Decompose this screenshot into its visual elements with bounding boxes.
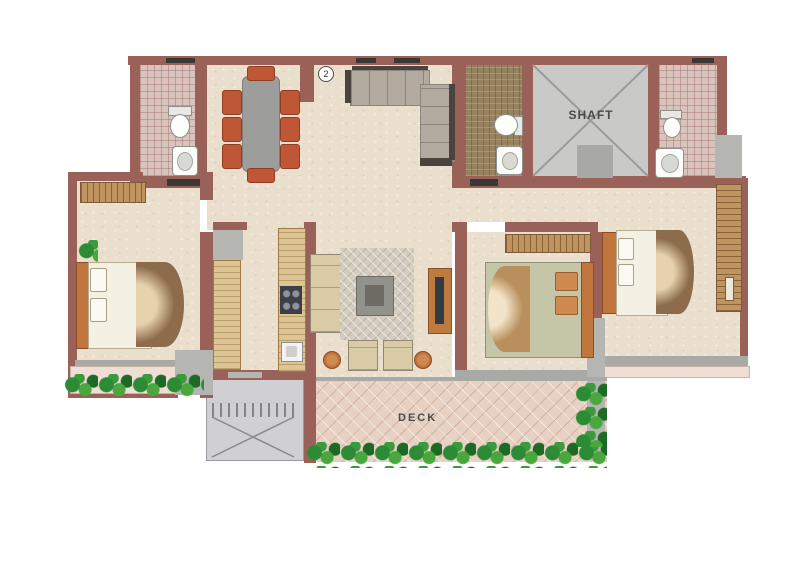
window: [692, 58, 714, 63]
wardrobe: [80, 182, 146, 203]
sofa-armrest: [345, 70, 351, 103]
washbasin-icon: [496, 146, 523, 175]
bed-blanket: [488, 266, 530, 352]
dining-chair: [222, 90, 242, 115]
dining-chair: [280, 144, 300, 169]
pillow: [90, 298, 107, 322]
ac-ledge: [715, 135, 742, 178]
basin-bowl: [177, 152, 193, 171]
entry-number: 2: [323, 69, 328, 79]
washbasin-icon: [655, 148, 684, 178]
sofa-back: [449, 84, 455, 160]
door-threshold: [167, 179, 200, 186]
service-grill: [212, 403, 294, 417]
toilet-icon: [494, 114, 518, 136]
kitchen-platform: [213, 230, 243, 260]
pillow: [618, 238, 634, 260]
bedroom3-window-sill: [598, 356, 748, 366]
wall: [213, 222, 247, 230]
sofa-l-shape: [350, 70, 430, 106]
bed-blanket: [656, 230, 694, 314]
window: [166, 58, 198, 63]
wall: [128, 56, 727, 65]
sofa: [310, 254, 341, 333]
side-stool: [414, 351, 432, 369]
sofa-armrest: [420, 158, 452, 166]
hallway-floor: [452, 188, 602, 222]
basin-bowl: [502, 152, 518, 170]
door-threshold: [470, 179, 498, 186]
dining-chair: [280, 117, 300, 142]
wall: [130, 56, 140, 186]
washbasin-icon: [172, 146, 198, 176]
dining-chair: [247, 66, 275, 81]
service-cross-icon: [212, 417, 294, 457]
kitchen-window: [228, 372, 262, 378]
entry-number-badge: 2: [318, 66, 334, 82]
wardrobe: [505, 234, 591, 253]
window: [394, 58, 420, 63]
deck-plants: [575, 383, 607, 447]
sink-icon: [281, 342, 303, 362]
shaft-label: SHAFT: [548, 108, 634, 122]
planter-plants: [64, 374, 204, 398]
wardrobe: [716, 184, 742, 312]
sink-bowl: [286, 346, 297, 357]
pillow: [555, 296, 578, 315]
deck-plants: [306, 442, 607, 468]
basin-bowl: [661, 154, 679, 173]
toilet-icon: [170, 114, 190, 138]
kitchen-counter: [213, 260, 241, 370]
wall: [505, 222, 598, 232]
deck-label: DECK: [398, 412, 458, 424]
table-decor: [365, 285, 384, 306]
dining-chair: [280, 90, 300, 115]
stove-icon: [280, 286, 302, 314]
dining-chair: [222, 144, 242, 169]
pillow: [90, 268, 107, 292]
wall: [68, 172, 143, 181]
tv-unit: [428, 268, 452, 334]
bed-headboard: [581, 262, 594, 358]
armchair: [348, 340, 378, 371]
coffee-table: [356, 276, 394, 316]
deck-edge: [316, 377, 607, 381]
side-stool: [323, 351, 341, 369]
window: [356, 58, 376, 63]
bedroom3-ledge: [598, 366, 750, 378]
toilet-icon: [663, 117, 681, 138]
pillow: [618, 264, 634, 286]
dining-table: [242, 76, 280, 172]
shaft-block: [577, 145, 613, 178]
wardrobe-handle: [725, 277, 734, 301]
dining-chair: [247, 168, 275, 183]
wall: [300, 56, 314, 102]
dining-chair: [222, 117, 242, 142]
wall: [522, 56, 533, 188]
wall: [200, 172, 213, 200]
pillow: [555, 272, 578, 291]
tv-icon: [435, 277, 444, 324]
bed-blanket: [136, 262, 184, 347]
wall: [455, 222, 467, 378]
floor-plan: SHAFT 2: [0, 0, 800, 570]
armchair: [383, 340, 413, 371]
